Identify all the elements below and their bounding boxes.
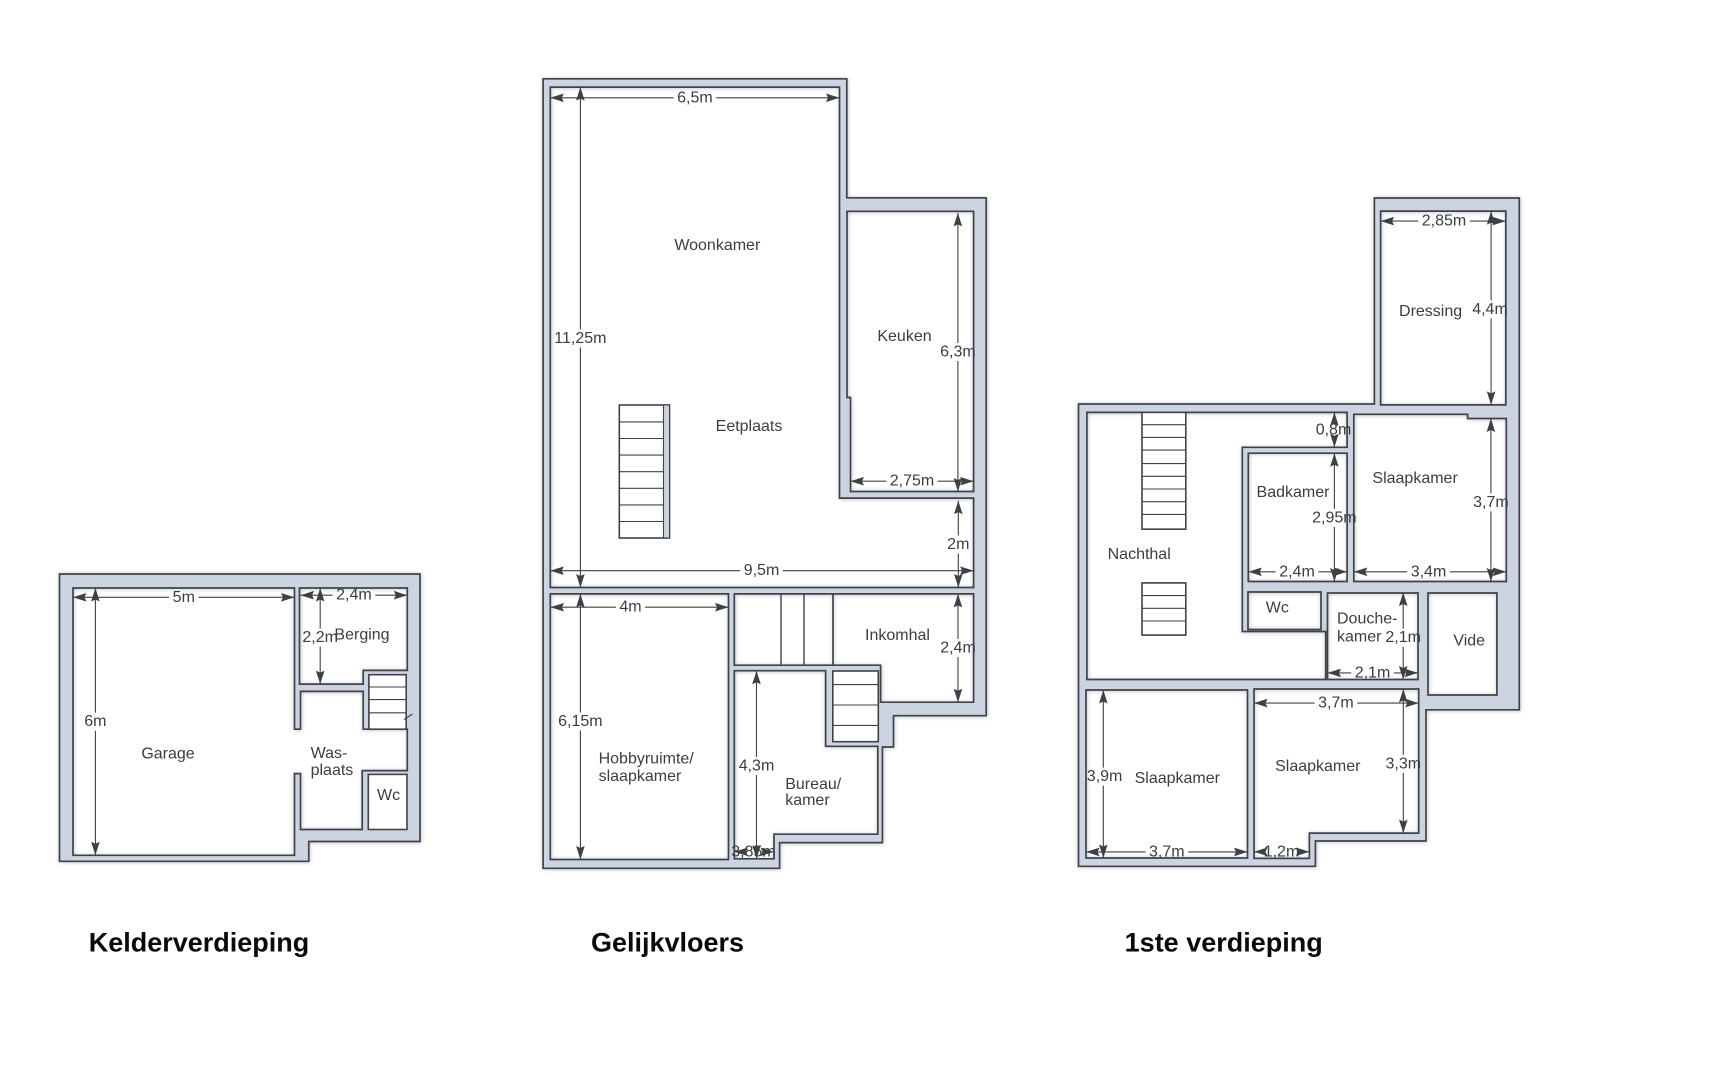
svg-text:1ste verdieping: 1ste verdieping [1125,928,1323,958]
svg-text:Slaapkamer: Slaapkamer [1135,770,1221,787]
svg-text:3,7m: 3,7m [1473,494,1509,511]
svg-text:plaats: plaats [311,762,354,779]
svg-text:3,7m: 3,7m [1149,843,1185,860]
svg-text:5m: 5m [173,589,195,606]
svg-text:2,4m: 2,4m [336,587,372,604]
svg-text:2m: 2m [947,536,969,553]
svg-text:2,4m: 2,4m [1279,563,1315,580]
svg-text:9,5m: 9,5m [744,562,780,579]
svg-text:Dressing: Dressing [1399,303,1462,320]
svg-text:Garage: Garage [141,746,194,763]
svg-text:Wc: Wc [377,787,400,804]
svg-text:slaapkamer: slaapkamer [599,768,682,785]
svg-text:Inkomhal: Inkomhal [865,627,930,644]
svg-text:2,95m: 2,95m [1312,509,1356,526]
svg-text:3,4m: 3,4m [1411,563,1447,580]
svg-text:11,25m: 11,25m [554,330,606,347]
svg-text:3,3m: 3,3m [1386,755,1422,772]
svg-text:2,1m: 2,1m [1355,664,1391,681]
svg-text:6,5m: 6,5m [677,89,713,106]
svg-text:4,4m: 4,4m [1472,301,1508,318]
svg-text:2,1m: 2,1m [1385,629,1421,646]
svg-text:Eetplaats: Eetplaats [716,418,783,435]
svg-text:2,2m: 2,2m [302,629,338,646]
svg-text:Gelijkvloers: Gelijkvloers [591,928,744,958]
svg-text:1,2m: 1,2m [1264,843,1300,860]
svg-text:Bureau/: Bureau/ [785,776,842,793]
svg-text:4,3m: 4,3m [739,758,775,775]
svg-text:Nachthal: Nachthal [1108,546,1171,563]
svg-text:Douche-: Douche- [1337,611,1397,628]
svg-text:Keuken: Keuken [877,328,931,345]
svg-text:Hobbyruimte/: Hobbyruimte/ [599,751,695,768]
svg-text:Wc: Wc [1266,600,1289,617]
svg-text:6,15m: 6,15m [558,713,602,730]
svg-text:6,3m: 6,3m [940,344,976,361]
svg-text:3,9m: 3,9m [1087,768,1123,785]
svg-text:Badkamer: Badkamer [1257,484,1331,501]
svg-text:Slaapkamer: Slaapkamer [1275,758,1361,775]
svg-text:Vide: Vide [1453,633,1485,650]
svg-text:3,7m: 3,7m [1318,695,1354,712]
svg-text:kamer: kamer [785,792,830,809]
svg-text:Kelderverdieping: Kelderverdieping [89,928,310,958]
svg-text:2,4m: 2,4m [940,640,976,657]
svg-text:Was-: Was- [311,745,348,762]
svg-text:Woonkamer: Woonkamer [674,237,761,254]
svg-text:2,85m: 2,85m [1422,213,1466,230]
svg-text:2,75m: 2,75m [890,473,934,490]
svg-text:6m: 6m [84,713,106,730]
svg-text:kamer: kamer [1337,629,1382,646]
svg-text:Berging: Berging [334,627,389,644]
svg-text:Slaapkamer: Slaapkamer [1372,470,1458,487]
svg-text:4m: 4m [619,599,641,616]
